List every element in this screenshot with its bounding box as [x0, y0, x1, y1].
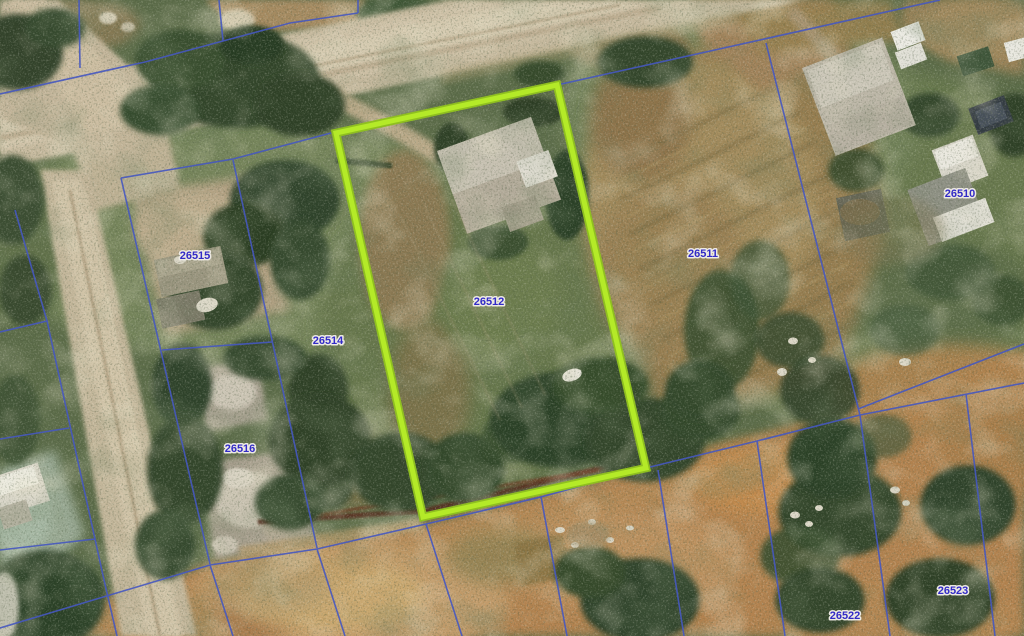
svg-text:26522: 26522	[830, 610, 861, 622]
svg-text:26515: 26515	[180, 250, 211, 262]
svg-text:26512: 26512	[474, 296, 505, 308]
svg-text:26523: 26523	[938, 585, 969, 597]
svg-text:26516: 26516	[225, 443, 256, 455]
svg-text:26510: 26510	[945, 188, 976, 200]
svg-text:26511: 26511	[688, 248, 718, 260]
svg-text:26514: 26514	[313, 335, 344, 347]
